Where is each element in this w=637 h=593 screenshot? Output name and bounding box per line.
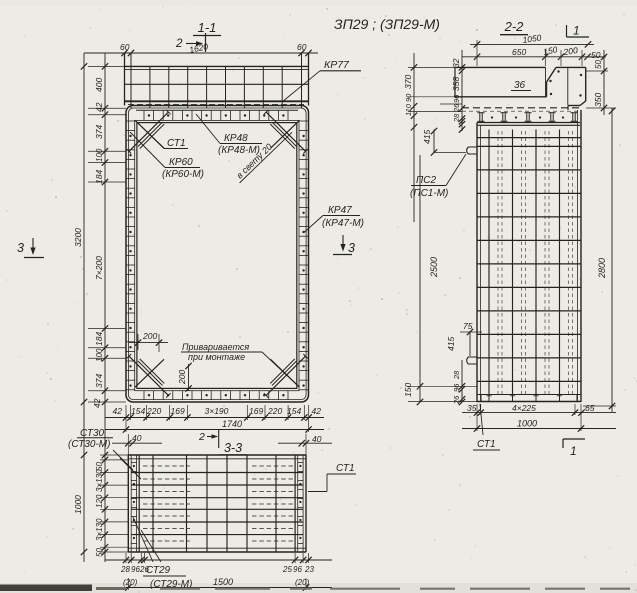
svg-text:2800: 2800 xyxy=(597,258,607,279)
svg-text:28: 28 xyxy=(452,113,461,123)
svg-text:50: 50 xyxy=(594,60,603,69)
svg-text:(20): (20) xyxy=(123,578,138,587)
svg-text:2-2: 2-2 xyxy=(504,19,525,34)
svg-text:36: 36 xyxy=(514,80,526,91)
svg-text:35: 35 xyxy=(467,403,477,413)
svg-text:184: 184 xyxy=(94,332,104,346)
svg-text:32: 32 xyxy=(451,58,461,68)
svg-text:100: 100 xyxy=(95,348,104,362)
svg-text:154: 154 xyxy=(131,406,145,416)
svg-text:26: 26 xyxy=(139,565,149,574)
svg-text:3: 3 xyxy=(17,241,24,255)
svg-text:2500: 2500 xyxy=(429,257,439,278)
svg-text:154: 154 xyxy=(287,406,301,416)
svg-text:96: 96 xyxy=(293,565,302,574)
svg-text:ЗП29 ; (ЗП29-М): ЗП29 ; (ЗП29-М) xyxy=(334,16,440,32)
svg-text:400: 400 xyxy=(94,78,104,92)
svg-text:65: 65 xyxy=(585,403,595,413)
svg-text:169: 169 xyxy=(249,406,263,416)
svg-text:(ПС1-М): (ПС1-М) xyxy=(410,188,448,199)
svg-text:220: 220 xyxy=(146,406,161,416)
svg-text:28: 28 xyxy=(452,370,461,380)
svg-text:7×200: 7×200 xyxy=(94,256,104,280)
svg-text:1000: 1000 xyxy=(73,495,83,514)
svg-text:4×225: 4×225 xyxy=(512,403,536,413)
svg-text:42: 42 xyxy=(92,398,102,408)
svg-text:3-3: 3-3 xyxy=(224,441,242,455)
svg-text:200: 200 xyxy=(142,331,157,341)
svg-text:ПС2: ПС2 xyxy=(416,175,436,186)
svg-text:(20): (20) xyxy=(295,578,310,587)
svg-text:1: 1 xyxy=(573,24,580,38)
svg-text:40: 40 xyxy=(312,434,322,444)
svg-text:42: 42 xyxy=(312,406,322,416)
svg-text:(КР47-М): (КР47-М) xyxy=(322,218,364,229)
svg-text:120: 120 xyxy=(95,494,104,508)
svg-text:200: 200 xyxy=(177,370,187,385)
svg-text:650: 650 xyxy=(512,47,526,57)
svg-text:370: 370 xyxy=(403,75,413,89)
svg-text:184: 184 xyxy=(94,170,104,184)
svg-text:1000: 1000 xyxy=(517,419,537,429)
svg-text:60: 60 xyxy=(297,42,307,52)
svg-text:25: 25 xyxy=(282,565,292,574)
svg-text:42: 42 xyxy=(113,406,123,416)
svg-text:Приваривается: Приваривается xyxy=(182,342,249,352)
svg-text:КР60: КР60 xyxy=(169,157,193,168)
svg-text:90: 90 xyxy=(404,93,413,102)
svg-text:75: 75 xyxy=(463,321,473,331)
svg-text:110: 110 xyxy=(404,103,413,116)
svg-text:3200: 3200 xyxy=(73,228,83,247)
svg-text:60: 60 xyxy=(120,42,130,52)
svg-text:3×190: 3×190 xyxy=(205,406,229,416)
svg-text:28: 28 xyxy=(120,565,130,574)
svg-text:СТ1: СТ1 xyxy=(336,463,355,474)
svg-text:50: 50 xyxy=(591,50,601,60)
svg-text:358: 358 xyxy=(451,77,461,91)
svg-text:(СТ30-М): (СТ30-М) xyxy=(68,439,110,450)
svg-text:40: 40 xyxy=(132,433,142,443)
svg-text:СТ1: СТ1 xyxy=(167,138,186,149)
svg-text:СТ29: СТ29 xyxy=(146,565,171,576)
svg-text:42: 42 xyxy=(94,102,104,112)
svg-text:1: 1 xyxy=(570,444,577,458)
svg-text:100: 100 xyxy=(95,148,104,162)
svg-text:КР77: КР77 xyxy=(324,59,350,71)
svg-text:1-1: 1-1 xyxy=(198,20,217,35)
svg-text:374: 374 xyxy=(94,374,104,388)
svg-text:150: 150 xyxy=(403,383,413,397)
svg-text:1500: 1500 xyxy=(213,577,233,587)
svg-text:200: 200 xyxy=(562,45,579,57)
svg-text:26: 26 xyxy=(452,103,461,113)
svg-text:50: 50 xyxy=(95,548,104,557)
svg-text:3: 3 xyxy=(348,241,355,255)
svg-text:96: 96 xyxy=(452,383,461,392)
svg-text:(КР60-М): (КР60-М) xyxy=(162,169,204,180)
svg-text:350: 350 xyxy=(593,93,603,107)
svg-text:26: 26 xyxy=(452,395,461,405)
svg-text:2: 2 xyxy=(198,431,205,443)
svg-text:415: 415 xyxy=(422,130,432,144)
svg-text:415: 415 xyxy=(446,337,456,351)
svg-text:3×130: 3×130 xyxy=(95,518,104,541)
svg-text:23: 23 xyxy=(304,565,314,574)
svg-text:2: 2 xyxy=(175,38,183,50)
svg-text:169: 169 xyxy=(171,406,185,416)
svg-text:при монтаже: при монтаже xyxy=(188,352,245,362)
svg-text:КР47: КР47 xyxy=(328,205,352,216)
svg-text:220: 220 xyxy=(267,406,282,416)
svg-text:КР48: КР48 xyxy=(224,133,248,144)
svg-text:1740: 1740 xyxy=(222,419,242,429)
svg-text:96: 96 xyxy=(452,94,461,103)
svg-text:3×130: 3×130 xyxy=(95,469,104,492)
svg-text:СТ1: СТ1 xyxy=(477,439,496,450)
svg-text:374: 374 xyxy=(94,125,104,139)
